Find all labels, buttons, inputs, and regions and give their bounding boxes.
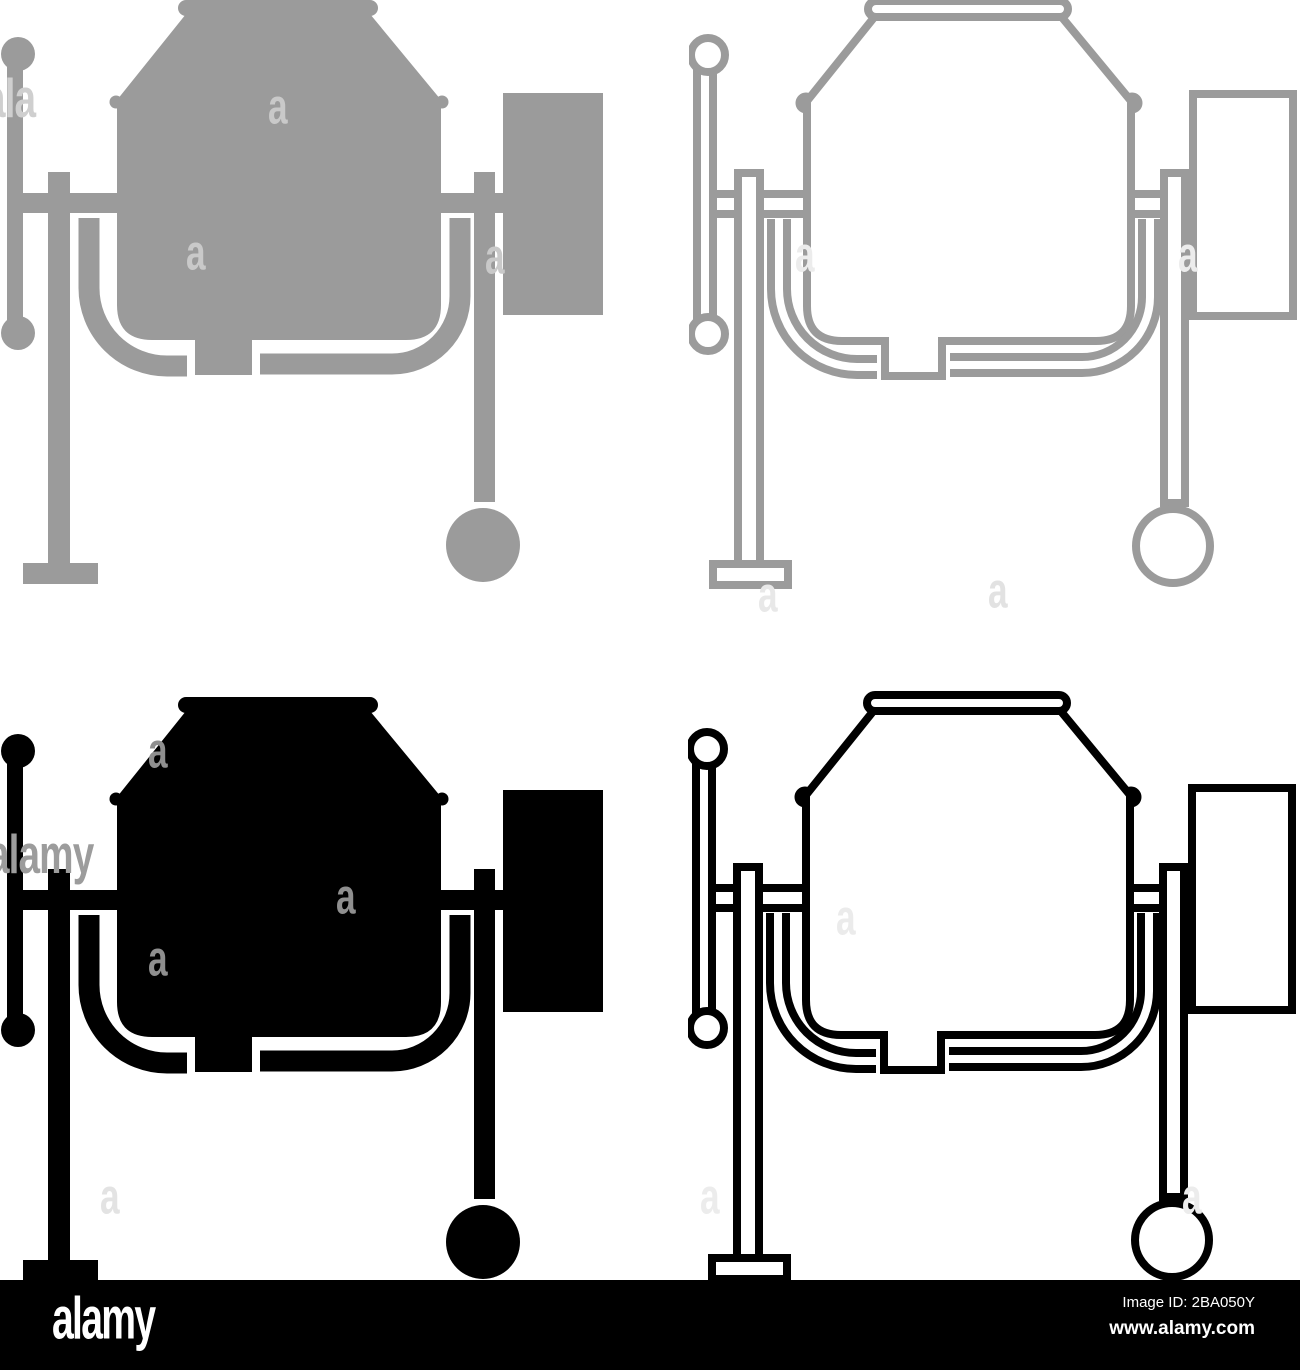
alamy-watermark-text: a xyxy=(988,566,1007,616)
alamy-watermark-text: ala xyxy=(0,72,35,127)
footer-right-text: Image ID: 2BA050Y www.alamy.com xyxy=(1109,1294,1255,1340)
alamy-watermark-text: a xyxy=(100,1172,119,1222)
concrete-mixer-black-filled-icon xyxy=(0,693,613,1287)
concrete-mixer-glyph xyxy=(689,0,1300,591)
alamy-watermark-text: a xyxy=(148,726,167,776)
stock-image-canvas: alaaaaaaaaaalamyaaaaaa alamy Image ID: 2… xyxy=(0,0,1300,1370)
concrete-mixer-glyph xyxy=(0,0,613,590)
alamy-watermark-text: a xyxy=(700,1172,719,1222)
website-url-text: www.alamy.com xyxy=(1109,1318,1255,1340)
alamy-watermark-text: alamy xyxy=(0,828,93,883)
alamy-watermark-text: a xyxy=(485,232,504,282)
alamy-watermark-text: a xyxy=(1182,1172,1201,1222)
alamy-watermark-text: a xyxy=(268,82,287,132)
concrete-mixer-glyph xyxy=(688,691,1300,1285)
image-id-text: Image ID: 2BA050Y xyxy=(1109,1294,1255,1311)
alamy-watermark-text: a xyxy=(836,893,855,943)
footer-bar: alamy Image ID: 2BA050Y www.alamy.com xyxy=(0,1280,1300,1370)
concrete-mixer-glyph xyxy=(0,693,613,1287)
alamy-watermark-text: a xyxy=(148,934,167,984)
alamy-watermark-text: a xyxy=(186,228,205,278)
concrete-mixer-grey-filled-icon xyxy=(0,0,613,590)
alamy-watermark-text: a xyxy=(336,872,355,922)
alamy-logo: alamy xyxy=(52,1288,154,1348)
alamy-watermark-text: a xyxy=(1178,230,1197,280)
alamy-watermark-text: a xyxy=(758,570,777,620)
alamy-watermark-text: a xyxy=(795,230,814,280)
concrete-mixer-grey-outline-icon xyxy=(689,0,1300,591)
concrete-mixer-black-outline-icon xyxy=(688,691,1300,1285)
